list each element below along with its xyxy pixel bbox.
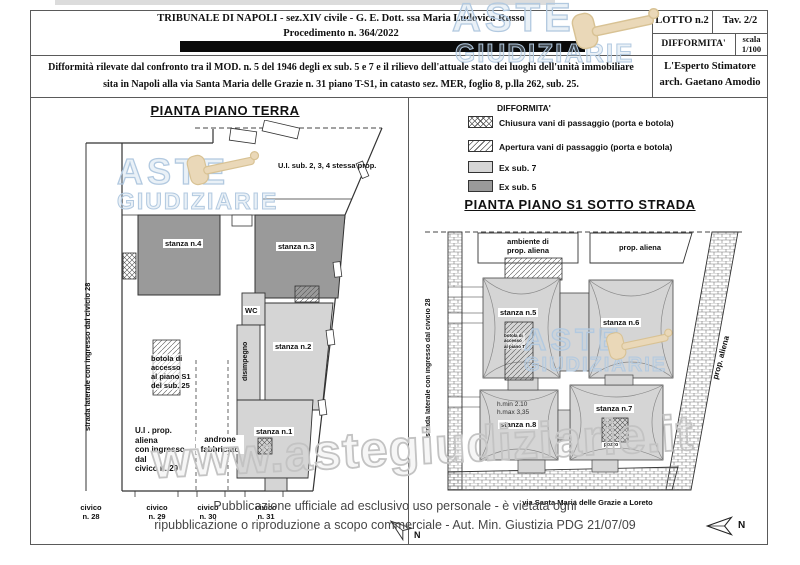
scan-artifact <box>55 0 555 5</box>
s1-stanza8-label: stanza n.8 <box>498 420 538 429</box>
redaction-bar <box>180 41 585 52</box>
expert-title: L'Esperto Stimatore <box>652 61 768 72</box>
terra-stanza1-label: stanza n.1 <box>254 427 294 436</box>
expert-name: arch. Gaetano Amodio <box>652 77 768 88</box>
s1-stanza7-label: stanza n.7 <box>594 404 634 413</box>
s1-street-label: strada laterale con ingresso dal civicio… <box>425 278 437 458</box>
s1-ambiente-label: ambiente di prop. aliena <box>488 237 568 255</box>
terra-plan-title: PIANTA PIANO TERRA <box>125 103 325 118</box>
document-page: TRIBUNALE DI NAPOLI - sez.XIV civile - G… <box>0 0 800 565</box>
legend-swatch-apertura <box>468 140 493 152</box>
legend-item-apertura: Apertura vani di passaggio (porta e boto… <box>499 142 672 152</box>
legend-item-exsub5: Ex sub. 5 <box>499 182 536 192</box>
s1-pozzo-label: pozzo <box>602 442 620 448</box>
terra-stanza2-label: stanza n.2 <box>273 342 313 351</box>
legend-swatch-exsub5 <box>468 180 493 192</box>
court-title: TRIBUNALE DI NAPOLI - sez.XIV civile - G… <box>30 13 652 24</box>
panel-divider <box>408 97 409 545</box>
difformita-label: DIFFORMITA' <box>652 39 735 49</box>
footer-disclaimer-line1: Pubblicazione ufficiale ad esclusivo uso… <box>60 499 730 513</box>
s1-heights-label: h.min 2.10 h.max 3,35 <box>497 401 529 417</box>
legend-swatch-chiusura <box>468 116 493 128</box>
terra-botola-label: botola di accesso al piano S1 del sub. 2… <box>151 354 195 390</box>
scala-label-1: scala <box>735 34 768 44</box>
procedure-number: Procedimento n. 364/2022 <box>30 28 652 39</box>
footer-disclaimer-line2: ripubblicazione o riproduzione a scopo c… <box>60 518 730 532</box>
s1-stanza5-label: stanza n.5 <box>498 308 538 317</box>
legend-item-chiusura: Chiusura vani di passaggio (porta e boto… <box>499 118 674 128</box>
terra-androne-label: androne fabbricato <box>196 435 244 454</box>
scala-label-2: 1/100 <box>735 44 768 54</box>
s1-north-label: N <box>738 520 745 532</box>
legend-swatch-exsub7 <box>468 161 493 173</box>
description-line2: sita in Napoli alla via Santa Maria dell… <box>38 79 644 90</box>
lotto-label: LOTTO n.2 <box>652 15 712 26</box>
description-line1: Difformità rilevate dal confronto tra il… <box>38 62 644 73</box>
terra-ui-sub-label: U.I. sub. 2, 3, 4 stessa prop. <box>278 161 388 170</box>
tav-label: Tav. 2/2 <box>712 15 768 26</box>
s1-stanza6-label: stanza n.6 <box>601 318 641 327</box>
s1-plan-drawing <box>420 225 760 497</box>
s1-botola-label: botola di accesso al piano T <box>504 333 525 349</box>
legend-title: DIFFORMITA' <box>497 103 551 113</box>
terra-ui-aliena-label: U.I . prop. aliena con ingresso dal civi… <box>135 426 195 474</box>
terra-wc-label: WC <box>243 306 260 315</box>
terra-stanza3-label: stanza n.3 <box>276 242 316 251</box>
header-divider-h2 <box>30 55 768 56</box>
terra-stanza4-label: stanza n.4 <box>163 239 203 248</box>
legend-item-exsub7: Ex sub. 7 <box>499 163 536 173</box>
header-divider-h3 <box>30 97 768 98</box>
terra-street-label: strada laterale con ingresso dal civicio… <box>83 250 95 464</box>
s1-plan-title: PIANTA PIANO S1 SOTTO STRADA <box>455 197 705 212</box>
terra-disimpegno-label: disimpegno <box>242 330 253 392</box>
s1-prop-aliena-top-label: prop. aliena <box>600 243 680 252</box>
